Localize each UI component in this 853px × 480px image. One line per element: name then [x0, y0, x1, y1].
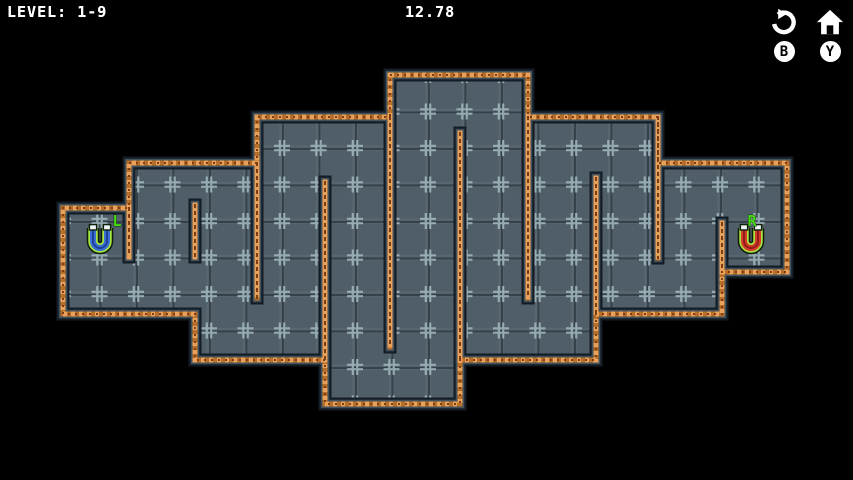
home-button[interactable]: Y	[815, 8, 845, 62]
maze-floor	[63, 75, 787, 404]
timer: 12.78	[405, 3, 455, 21]
game-screen: LR LEVEL: 1-9 12.78 B Y	[0, 0, 853, 480]
restart-button[interactable]: B	[769, 8, 799, 62]
right-magnet-label: R	[747, 212, 757, 230]
left-magnet-label: L	[112, 212, 121, 230]
home-icon	[815, 8, 845, 38]
button-y-label: Y	[826, 45, 834, 59]
button-b-label: B	[780, 45, 788, 59]
maze-canvas: LR	[0, 0, 853, 480]
restart-icon	[769, 8, 799, 38]
hud-buttons: B Y	[769, 8, 845, 62]
button-y-badge: Y	[820, 41, 841, 62]
level-indicator: LEVEL: 1-9	[7, 3, 107, 21]
button-b-badge: B	[774, 41, 795, 62]
